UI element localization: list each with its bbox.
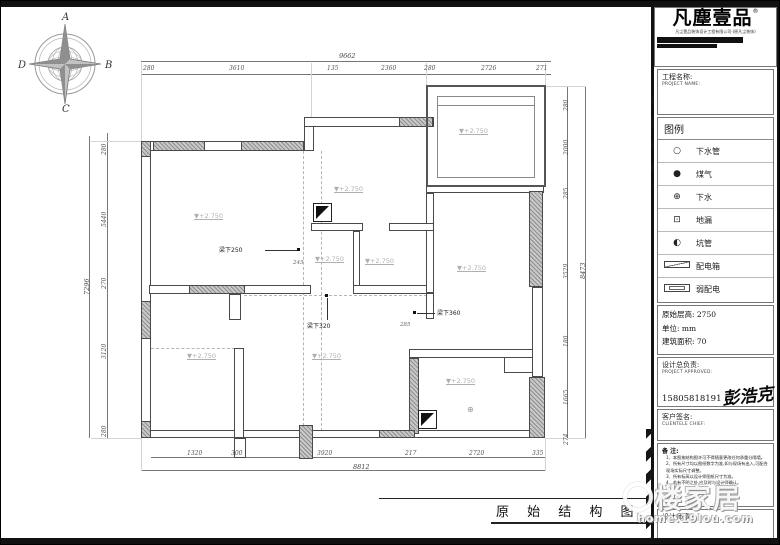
elevation-label: ▼+2.750 [334, 185, 363, 193]
small-dim-label: 285 [400, 322, 411, 328]
logo-text: 凡塵壹品 [672, 7, 752, 29]
dim-label: 1320 [187, 450, 202, 457]
compass-label-c: C [62, 104, 70, 113]
floor-drain-icon: ⊡ [658, 215, 696, 225]
flue-symbol [313, 203, 332, 222]
dim-label: 5440 [101, 212, 108, 227]
beam-label: 梁下360 [437, 308, 460, 317]
elevation-label: ▼+2.750 [446, 377, 475, 385]
dimension-line [91, 438, 141, 439]
hatched-wall [529, 191, 543, 287]
title-block-panel: 凡塵壹品® 凡尘壹品装饰设计工程有限公司·(原凡尘装饰) 工程名称: PROJE… [654, 7, 779, 538]
legend-label: 配电箱 [696, 261, 720, 272]
hatched-wall [141, 141, 151, 157]
legend-row: 弱配电 [658, 278, 773, 300]
dim-label: 335 [532, 450, 543, 457]
dimension-line [545, 438, 546, 471]
hatched-wall [379, 430, 415, 438]
project-name-label-en: PROJECT NAME: [662, 82, 769, 87]
legend-label: 下水管 [696, 146, 720, 157]
beam-dot [413, 311, 416, 314]
dim-label: 280 [424, 65, 435, 72]
overall-dim-label: 8812 [353, 463, 370, 471]
dimension-line [141, 63, 142, 141]
elevation-label: ▼+2.750 [187, 352, 216, 360]
dim-label: 2360 [381, 65, 396, 72]
overall-dim-label: 8473 [579, 262, 587, 279]
wall [353, 285, 434, 294]
logo-bar [657, 37, 743, 43]
dim-label: 270 [101, 278, 108, 289]
drawing-title: 原 始 结 构 图 [496, 501, 641, 520]
beam-label: 梁下320 [307, 321, 330, 330]
note-line: 2、所有尺寸均以图纸数字为准,如与现场有出入,可配合现场实际尺寸调整。 [666, 461, 769, 474]
approval-label-cn: 设计总负责: [662, 360, 769, 370]
small-dim-label: 245 [293, 260, 304, 266]
dim-label: 271 [536, 65, 547, 72]
dim-label: 2726 [481, 65, 496, 72]
beam-dot [325, 294, 328, 297]
drain-icon: ⊕ [658, 192, 696, 202]
beam-leader-line [417, 313, 435, 314]
dim-label: 180 [563, 336, 570, 347]
gas-icon: ● [658, 169, 696, 179]
wall [532, 287, 543, 377]
elevation-label: ▼+2.750 [315, 255, 344, 263]
window-frame [437, 96, 535, 178]
downpipe-icon: ○ [658, 146, 696, 156]
elevation-label: ▼+2.750 [457, 264, 486, 272]
wall [426, 293, 434, 319]
flue-symbol [418, 410, 437, 429]
client-label-cn: 客户签名: [662, 412, 769, 422]
legend-title: 图例 [658, 118, 773, 140]
legend-row: ◐坑管 [658, 232, 773, 255]
dashed-line [151, 348, 235, 349]
beam-dot [297, 248, 300, 251]
pit-pipe-icon: ◐ [658, 238, 696, 248]
dim-label: 280 [563, 100, 570, 111]
legend-row: 配电箱 [658, 255, 773, 278]
notes-title: 备 注: [662, 446, 769, 455]
dim-label: 3529 [563, 264, 570, 279]
legend-label: 地漏 [696, 215, 712, 226]
beam-label: 梁下250 [219, 245, 242, 254]
company-logo: 凡塵壹品® 凡尘壹品装饰设计工程有限公司·(原凡尘装饰) [654, 7, 777, 67]
dim-label: 280 [101, 144, 108, 155]
dimension-line [437, 105, 535, 106]
wall [311, 223, 363, 231]
dim-label: 2720 [469, 450, 484, 457]
hatched-wall [141, 421, 151, 438]
dashed-line [244, 295, 427, 296]
dim-label: 280 [143, 65, 154, 72]
registered-mark: ® [753, 8, 759, 15]
elevation-label: ▼+2.750 [194, 212, 223, 220]
unit: 单位: mm [662, 322, 769, 336]
dimension-line [91, 141, 141, 142]
distribution-box-icon [658, 261, 696, 271]
approval-box: 设计总负责: PROJECT APPROVED: 15805818191 彭浩克 [657, 357, 774, 407]
dim-label: 3120 [101, 344, 108, 359]
project-name-label-cn: 工程名称: [662, 72, 769, 82]
legend-label: 煤气 [696, 169, 712, 180]
dim-label: 3610 [229, 65, 244, 72]
compass-label-d: D [17, 60, 26, 71]
legend-row: ⊕下水 [658, 186, 773, 209]
dimension-line [141, 74, 551, 75]
logo-bar [657, 44, 717, 48]
title-rule [379, 498, 649, 499]
floor-plan-area: A B C D [1, 7, 651, 538]
drain-symbol: ⊕ [467, 405, 474, 414]
legend-label: 下水 [696, 192, 712, 203]
dim-label: 274 [563, 434, 570, 445]
elevation-label: ▼+2.750 [312, 352, 341, 360]
dimension-line [311, 63, 312, 117]
wall [426, 193, 434, 293]
legend-row: ○下水管 [658, 140, 773, 163]
wall [141, 430, 545, 438]
specs-box: 原始层高: 2750 单位: mm 建筑面积: 70 [657, 305, 774, 355]
dimension-line [141, 470, 546, 471]
legend-rows: ○下水管●煤气⊕下水⊡地漏◐坑管配电箱弱配电 [658, 140, 773, 300]
dim-label: 135 [327, 65, 338, 72]
dashed-line [321, 151, 322, 431]
beam-leader-line [327, 298, 328, 320]
compass-rose-icon: A B C D [17, 11, 113, 113]
watermark-text: 楼家居 [655, 484, 742, 515]
approval-label-en: PROJECT APPROVED: [662, 370, 769, 375]
elevation-label: ▼+2.750 [459, 127, 488, 135]
overall-dim-label: 7296 [83, 278, 91, 295]
compass-label-b: B [104, 60, 112, 71]
hatched-wall [189, 285, 245, 294]
hatched-wall [141, 301, 151, 339]
legend-box: 图例 ○下水管●煤气⊕下水⊡地漏◐坑管配电箱弱配电 [657, 117, 774, 303]
wall [353, 231, 360, 286]
dim-label: 3920 [317, 450, 332, 457]
legend-label: 坑管 [696, 238, 712, 249]
dimension-line [151, 457, 546, 458]
wall [229, 294, 241, 320]
weak-current-icon [658, 284, 696, 295]
wall [504, 357, 534, 373]
logo-tagline: 凡尘壹品装饰设计工程有限公司·(原凡尘装饰) [655, 29, 776, 35]
dimension-line [141, 438, 142, 471]
building-area: 建筑面积: 70 [662, 335, 769, 349]
dim-label: 300 [231, 450, 242, 457]
compass-label-a: A [61, 12, 69, 23]
hatched-wall [299, 425, 313, 459]
wall [389, 223, 434, 231]
watermark-url: home.19lou.com [637, 512, 754, 525]
client-signature-box: 客户签名: CLIENTELE CHIEF: [657, 409, 774, 441]
drawing-sheet: A B C D [0, 0, 780, 545]
dim-label: 1665 [563, 390, 570, 405]
legend-row: ⊡地漏 [658, 209, 773, 232]
project-name-box: 工程名称: PROJECT NAME: [657, 69, 774, 115]
phone-number: 15805818191 [662, 394, 722, 404]
dim-label: 2000 [563, 140, 570, 155]
beam-leader-line [265, 250, 297, 251]
wall [234, 348, 244, 438]
floor-height: 原始层高: 2750 [662, 308, 769, 322]
watermark: 楼家居 home.19lou.com [623, 477, 754, 525]
dimension-line [141, 61, 551, 62]
dim-label: 280 [101, 426, 108, 437]
hatched-wall [153, 141, 205, 151]
legend-label: 弱配电 [696, 284, 720, 295]
overall-dim-label: 9662 [339, 52, 356, 60]
watermark-logo-icon [623, 482, 653, 512]
dim-label: 217 [405, 450, 416, 457]
client-label-en: CLIENTELE CHIEF: [662, 422, 769, 427]
dim-label: 285 [563, 188, 570, 199]
dimension-line [546, 86, 586, 87]
elevation-label: ▼+2.750 [365, 257, 394, 265]
legend-row: ●煤气 [658, 163, 773, 186]
sheet-bottom-border [1, 538, 780, 545]
designer-signature: 彭浩克 [721, 379, 774, 409]
hatched-wall [241, 141, 304, 151]
hatched-wall [529, 377, 545, 438]
